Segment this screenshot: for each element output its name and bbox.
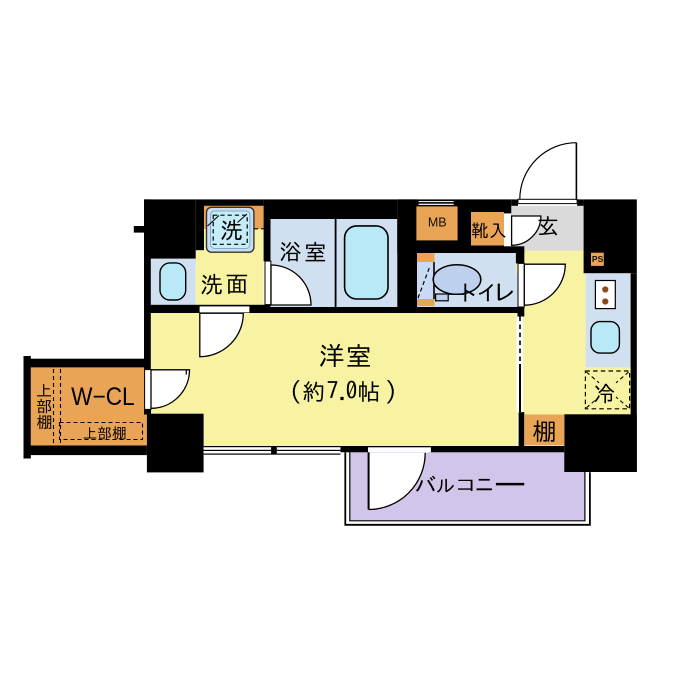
svg-text:PS: PS (592, 254, 604, 264)
svg-text:W−CL: W−CL (71, 383, 135, 411)
svg-text:MB: MB (428, 216, 447, 230)
